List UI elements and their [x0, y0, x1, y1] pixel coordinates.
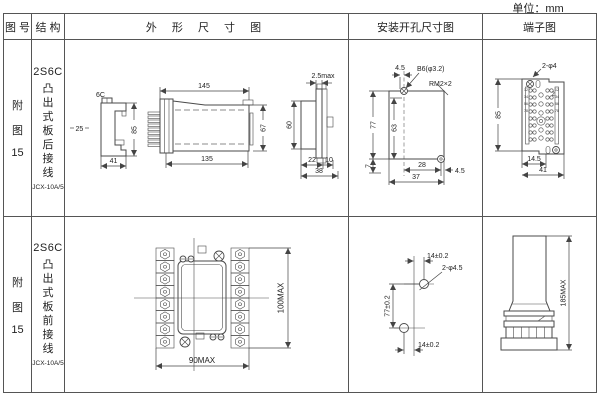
dim-label-77: 77±0.2: [385, 295, 392, 316]
terminal-cell-front: 185MAX: [483, 217, 596, 392]
terminal-numbers-left: 12345678: [524, 87, 528, 115]
fig-num: 15: [11, 147, 23, 159]
dim-label-41: 41: [110, 158, 118, 165]
structure-front: 2S6C 凸出式板前接线 JCX-10A/5: [32, 217, 65, 392]
dim-label-37: 37: [412, 174, 420, 181]
fig-char: 附: [12, 97, 23, 113]
dim-label-25: 25: [76, 126, 84, 133]
dim-label-28: 28: [418, 162, 426, 169]
dim-label-63: 63: [392, 124, 399, 132]
dim-label-10: 10: [325, 157, 333, 164]
dim-label-41: 41: [539, 167, 547, 174]
dim-label-60: 60: [287, 121, 294, 129]
dim-label-14-bottom: 14±0.2: [418, 342, 439, 349]
structure-model: 2S6C: [33, 242, 63, 254]
header-terminal: 端子图: [483, 14, 596, 40]
header-structure: 结 构: [32, 14, 65, 40]
dim-label-90max: 90MAX: [189, 356, 216, 365]
header-outline: 外 形 尺 寸 图: [65, 14, 349, 40]
terminal-drawing-rear: 2-φ4: [483, 40, 596, 217]
dim-label-38: 38: [315, 168, 323, 175]
dim-label-85: 85: [496, 111, 503, 119]
structure-rear: 2S6C 凸出式板后接线 JCX-10A/5: [32, 40, 65, 217]
structure-desc: 凸出式板后接线: [42, 82, 55, 180]
mounting-cell-rear: 4.5 B6(φ3.2) RM2×2 77 63 7 28 37: [349, 40, 483, 217]
fig-no-rear: 附 图 15: [4, 40, 32, 217]
dim-label-185max: 185MAX: [561, 279, 568, 306]
dim-label-25max: 2.5max: [312, 73, 335, 80]
spec-table: 图 号 结 构 外 形 尺 寸 图 安装开孔尺寸图 端子图 附 图 15 2S6…: [3, 13, 597, 393]
fig-num: 15: [11, 324, 23, 336]
dim-label-100max: 100MAX: [277, 282, 286, 313]
outline-drawing-rear: 6C 25 85 41: [65, 40, 349, 217]
header-structure-label: 结 构: [35, 19, 60, 35]
dim-label-4-5-top: 4.5: [395, 65, 405, 72]
dim-label-77: 77: [371, 121, 378, 129]
header-fig-no: 图 号: [4, 14, 32, 40]
terminal-cell-rear: 2-φ4: [483, 40, 596, 217]
hole-label: 2-φ4: [542, 63, 557, 70]
terminal-drawing-front: 185MAX: [483, 217, 596, 392]
fig-char: 图: [12, 122, 23, 138]
outline-drawing-front: 100MAX 90MAX: [65, 217, 349, 392]
header-mounting-label: 安装开孔尺寸图: [377, 19, 454, 35]
hole-label: B6(φ3.2): [417, 66, 445, 73]
outline-cell-front: 100MAX 90MAX: [65, 217, 349, 392]
dim-label-85: 85: [132, 126, 139, 134]
unit-label: 单位：mm: [482, 0, 594, 13]
header-fig-no-label: 图 号: [5, 19, 30, 35]
dim-label-14-top: 14±0.2: [427, 253, 448, 260]
terminal-holes: [529, 89, 553, 141]
header-terminal-label: 端子图: [523, 19, 556, 35]
structure-type: JCX-10A/5: [32, 184, 63, 191]
mounting-drawing-front: 14±0.2 2-φ4.5 77±0.2 14±0.2: [349, 217, 483, 392]
mounting-cell-front: 14±0.2 2-φ4.5 77±0.2 14±0.2: [349, 217, 483, 392]
header-mounting: 安装开孔尺寸图: [349, 14, 483, 40]
dim-label-22: 22: [308, 157, 316, 164]
dim-label-7: 7: [366, 164, 373, 168]
header-outline-label: 外 形 尺 寸 图: [146, 19, 267, 35]
structure-type: JCX-10A/5: [32, 360, 63, 367]
outline-cell-rear: 6C 25 85 41: [65, 40, 349, 217]
structure-model: 2S6C: [33, 66, 63, 78]
fig-char: 附: [12, 274, 23, 290]
fig-no-front: 附 图 15: [4, 217, 32, 392]
dim-label-67: 67: [261, 124, 268, 132]
terminal-numbers-right: 12345678: [555, 87, 559, 115]
fig-char: 图: [12, 299, 23, 315]
dim-label-145: 145: [198, 83, 210, 90]
dim-label-135: 135: [201, 156, 213, 163]
structure-desc: 凸出式板前接线: [42, 258, 55, 356]
mounting-drawing-rear: 4.5 B6(φ3.2) RM2×2 77 63 7 28 37: [349, 40, 483, 217]
hole-label: 2-φ4.5: [442, 265, 463, 272]
dim-label-14-5: 14.5: [527, 156, 541, 163]
dim-label-4-5-right: 4.5: [455, 168, 465, 175]
